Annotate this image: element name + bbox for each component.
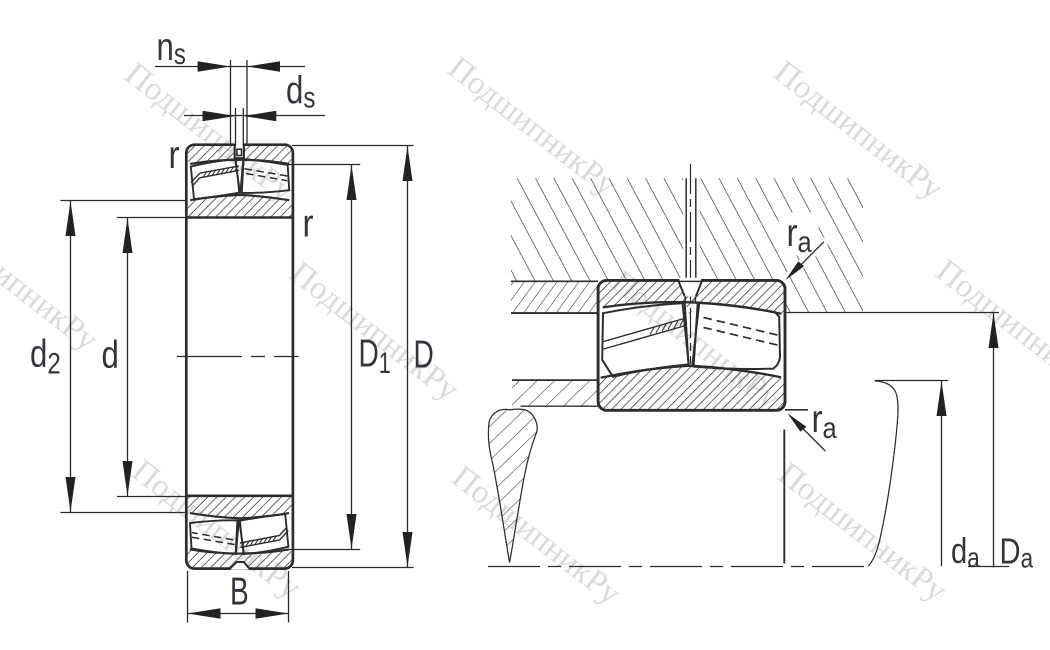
- svg-text:d: d: [102, 334, 119, 377]
- svg-text:r: r: [169, 132, 180, 176]
- svg-text:D: D: [414, 333, 434, 377]
- svg-text:r: r: [303, 201, 314, 245]
- svg-text:B: B: [230, 570, 249, 614]
